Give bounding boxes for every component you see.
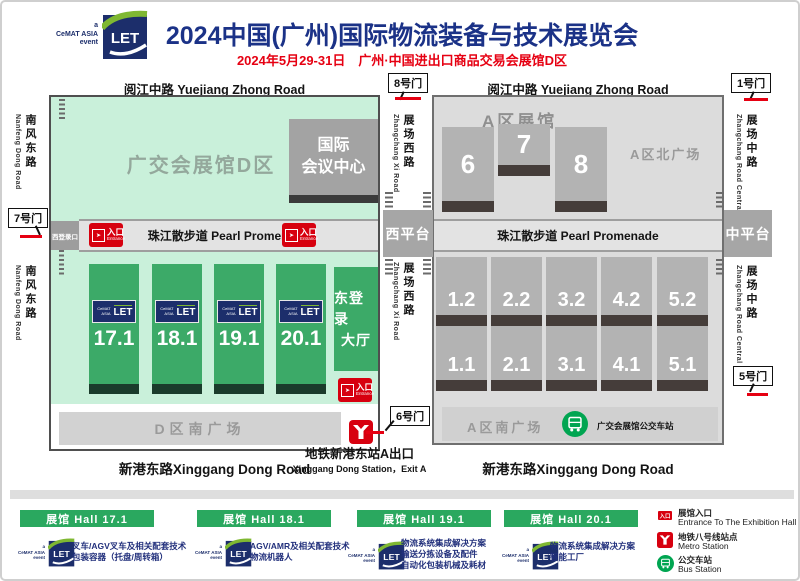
- entrance-badge: ➤ 入口Entrance: [338, 378, 372, 402]
- hall-number: 17.1: [94, 327, 135, 351]
- hall-base: [436, 315, 487, 326]
- gate-6-marker: [366, 431, 384, 434]
- metro-icon: [657, 532, 673, 548]
- gate-7-label: 7号门: [8, 208, 48, 228]
- hall-17-1: CeMAT ASIALET 17.1: [89, 264, 139, 394]
- zhangchang-zhong-road-label-upper: Zhangchang Road Central 展场中路: [735, 114, 759, 213]
- hall-base: [442, 201, 494, 212]
- legend-banner-hall-20-1: 展馆 Hall 20.1: [504, 510, 638, 527]
- hall-18-1: CeMAT ASIALET 18.1: [152, 264, 202, 394]
- hall-5-2: 5.2: [657, 257, 708, 326]
- d-zone-map: 广交会展馆D区 国际 会议中心 西登录口 珠江散步道 Pearl Promena…: [49, 95, 380, 451]
- hall-20-1: CeMAT ASIALET 20.1: [276, 264, 326, 394]
- zhangchang-xi-road-label-lower: Zhangchang Xi Road 展场西路: [392, 262, 416, 341]
- cemat-asia-event-text: a CeMAT ASIA event: [56, 22, 98, 47]
- let-logo-icon: LET: [225, 538, 252, 567]
- hall-4-2: 4.2: [601, 257, 652, 326]
- gate-6-label: 6号门: [390, 406, 430, 426]
- svg-text:LET: LET: [53, 549, 70, 559]
- let-badge: CeMAT ASIALET: [279, 300, 323, 323]
- hall-1-1: 1.1: [436, 326, 487, 391]
- hall-base: [555, 201, 607, 212]
- d-zone-south-plaza: D区南广场: [59, 412, 341, 445]
- event-date-subtitle: 2024年5月29-31日 广州·中国进出口商品交易会展馆D区: [142, 50, 662, 69]
- let-logo-icon: LET: [48, 538, 75, 567]
- hall-7: 7: [498, 124, 550, 176]
- nanfeng-road-label-lower: Nanfeng Dong Road 南风东路: [14, 265, 38, 341]
- hall-base: [491, 380, 542, 391]
- let-badge: CeMAT ASIALET: [217, 300, 261, 323]
- convention-center-label: 国际 会议中心: [289, 119, 378, 195]
- convention-center-base: [289, 195, 378, 203]
- middle-platform: 中平台: [724, 210, 772, 257]
- hall-base: [491, 315, 542, 326]
- hall-base: [601, 380, 652, 391]
- hall-number: 8: [574, 127, 588, 201]
- xinggang-road-label-left: 新港东路Xinggang Dong Road: [49, 458, 380, 478]
- hall-number: 4.2: [613, 257, 641, 315]
- hall-number: 5.1: [669, 326, 697, 380]
- legend-banner-hall-19-1: 展馆 Hall 19.1: [357, 510, 491, 527]
- stairs-decoration: [385, 192, 393, 208]
- legend-desc-hall-18-1: AGV/AMR及相关配套技术 物流机器人: [250, 541, 350, 563]
- hall-number: 3.1: [558, 326, 586, 380]
- d-zone-area-label: 广交会展馆D区: [81, 149, 321, 178]
- hall-19-1: CeMAT ASIALET 19.1: [214, 264, 264, 394]
- bus-icon: [562, 411, 588, 437]
- legend-desc-hall-20-1: 物流系统集成解决方案 智能工厂: [550, 541, 635, 563]
- zhangchang-xi-road-label-upper: Zhangchang Xi Road 展场西路: [392, 114, 416, 193]
- hall-base: [152, 384, 202, 394]
- hall-8: 8: [555, 127, 607, 212]
- hall-number: 6: [461, 127, 475, 201]
- hall-number: 19.1: [219, 327, 260, 351]
- hall-number: 18.1: [157, 327, 198, 351]
- hall-number: 20.1: [281, 327, 322, 351]
- hall-number: 1.1: [448, 326, 476, 380]
- legend-desc-hall-17-1: 叉车/AGV叉车及相关配套技术 包装容器（托盘/周转箱）: [72, 541, 186, 563]
- let-badge: CeMAT ASIALET: [155, 300, 199, 323]
- legend-metro-label-en: Metro Station: [678, 541, 729, 551]
- let-logo: a CeMAT ASIA event LET: [56, 10, 148, 60]
- legend-entrance-label-en: Entrance To The Exhibition Hall: [678, 517, 796, 527]
- hall-number: 3.2: [558, 257, 586, 315]
- entrance-icon: ➤: [285, 229, 298, 242]
- stairs-decoration: [59, 99, 65, 121]
- a-zone-south-plaza-label: A区南广场: [467, 417, 543, 436]
- pearl-promenade-right: 珠江散步道 Pearl Promenade: [434, 219, 722, 252]
- hall-4-1: 4.1: [601, 326, 652, 391]
- entrance-badge: ➤ 入口Entrance: [89, 223, 123, 247]
- hall-3-2: 3.2: [546, 257, 597, 326]
- svg-text:LET: LET: [383, 552, 400, 562]
- gate-8-marker: [395, 97, 421, 100]
- hall-number: 7: [517, 124, 531, 165]
- a-zone-map: A区展馆 A区北广场 6 7 8 珠江散步道 Pearl Promenade 1…: [432, 95, 724, 445]
- legend-desc-hall-19-1: 物流系统集成解决方案 输送分拣设备及配件 自动化包装机械及耗材: [401, 538, 486, 571]
- hall-number: 4.1: [613, 326, 641, 380]
- hall-3-1: 3.1: [546, 326, 597, 391]
- entrance-icon: 入口: [658, 511, 672, 520]
- west-platform: 西平台: [383, 210, 433, 257]
- hall-base: [546, 315, 597, 326]
- hall-2-1: 2.1: [491, 326, 542, 391]
- hall-base: [601, 315, 652, 326]
- hall-5-1: 5.1: [657, 326, 708, 391]
- a-zone-north-plaza-label: A区北广场: [630, 144, 701, 163]
- stairs-decoration: [385, 259, 393, 275]
- entrance-icon: ➤: [341, 384, 354, 397]
- stairs-decoration: [423, 259, 431, 275]
- venue-map-poster: a CeMAT ASIA event LET 2024中国(广州)国际物流装备与…: [0, 0, 800, 581]
- hall-base: [436, 380, 487, 391]
- let-logo: aCeMAT ASIAevent LET: [18, 538, 75, 567]
- bus-station-label: 广交会展馆公交车站: [597, 420, 674, 432]
- entrance-icon: ➤: [92, 229, 105, 242]
- xinggang-road-label-right: 新港东路Xinggang Dong Road: [432, 458, 724, 478]
- hall-base: [546, 380, 597, 391]
- hall-number: 5.2: [669, 257, 697, 315]
- stairs-decoration: [423, 192, 431, 208]
- east-registration-hall: 东登录 大厅: [334, 267, 378, 371]
- zhangchang-zhong-road-label-lower: Zhangchang Road Central 展场中路: [735, 265, 759, 364]
- nanfeng-road-label-upper: Nanfeng Dong Road 南风东路: [14, 114, 38, 190]
- hall-6: 6: [442, 127, 494, 212]
- stairs-decoration: [716, 192, 724, 208]
- hall-1-2: 1.2: [436, 257, 487, 326]
- west-login-entrance: 西登录口: [51, 221, 79, 250]
- gate-7-marker: [20, 235, 42, 238]
- svg-text:LET: LET: [230, 549, 247, 559]
- hall-number: 2.1: [503, 326, 531, 380]
- hall-number: 1.2: [448, 257, 476, 315]
- svg-text:LET: LET: [111, 30, 139, 47]
- hall-base: [498, 165, 550, 176]
- hall-number: 2.2: [503, 257, 531, 315]
- legend-banner-hall-17-1: 展馆 Hall 17.1: [20, 510, 154, 527]
- convention-center: 国际 会议中心: [289, 119, 378, 203]
- entrance-badge: ➤ 入口Entrance: [282, 223, 316, 247]
- exhibition-title: 2024中国(广州)国际物流装备与技术展览会: [142, 16, 662, 52]
- gate-8-label: 8号门: [388, 73, 428, 93]
- gate-1-label: 1号门: [731, 73, 771, 93]
- hall-base: [214, 384, 264, 394]
- gate-5-marker: [747, 393, 768, 396]
- legend-bus-label-en: Bus Station: [678, 564, 721, 574]
- hall-base: [276, 384, 326, 394]
- a-zone-south-plaza: A区南广场 广交会展馆公交车站: [442, 407, 718, 441]
- let-logo: aCeMAT ASIAevent LET: [348, 541, 405, 570]
- section-divider: [10, 490, 794, 499]
- hall-base: [89, 384, 139, 394]
- gate-1-marker: [744, 98, 768, 101]
- legend-banner-hall-18-1: 展馆 Hall 18.1: [197, 510, 331, 527]
- stairs-decoration: [59, 250, 64, 276]
- let-logo: aCeMAT ASIAevent LET: [195, 538, 252, 567]
- hall-base: [657, 315, 708, 326]
- stairs-decoration: [716, 259, 724, 275]
- bus-icon: [657, 555, 674, 572]
- hall-base: [657, 380, 708, 391]
- hall-2-2: 2.2: [491, 257, 542, 326]
- let-badge: CeMAT ASIALET: [92, 300, 136, 323]
